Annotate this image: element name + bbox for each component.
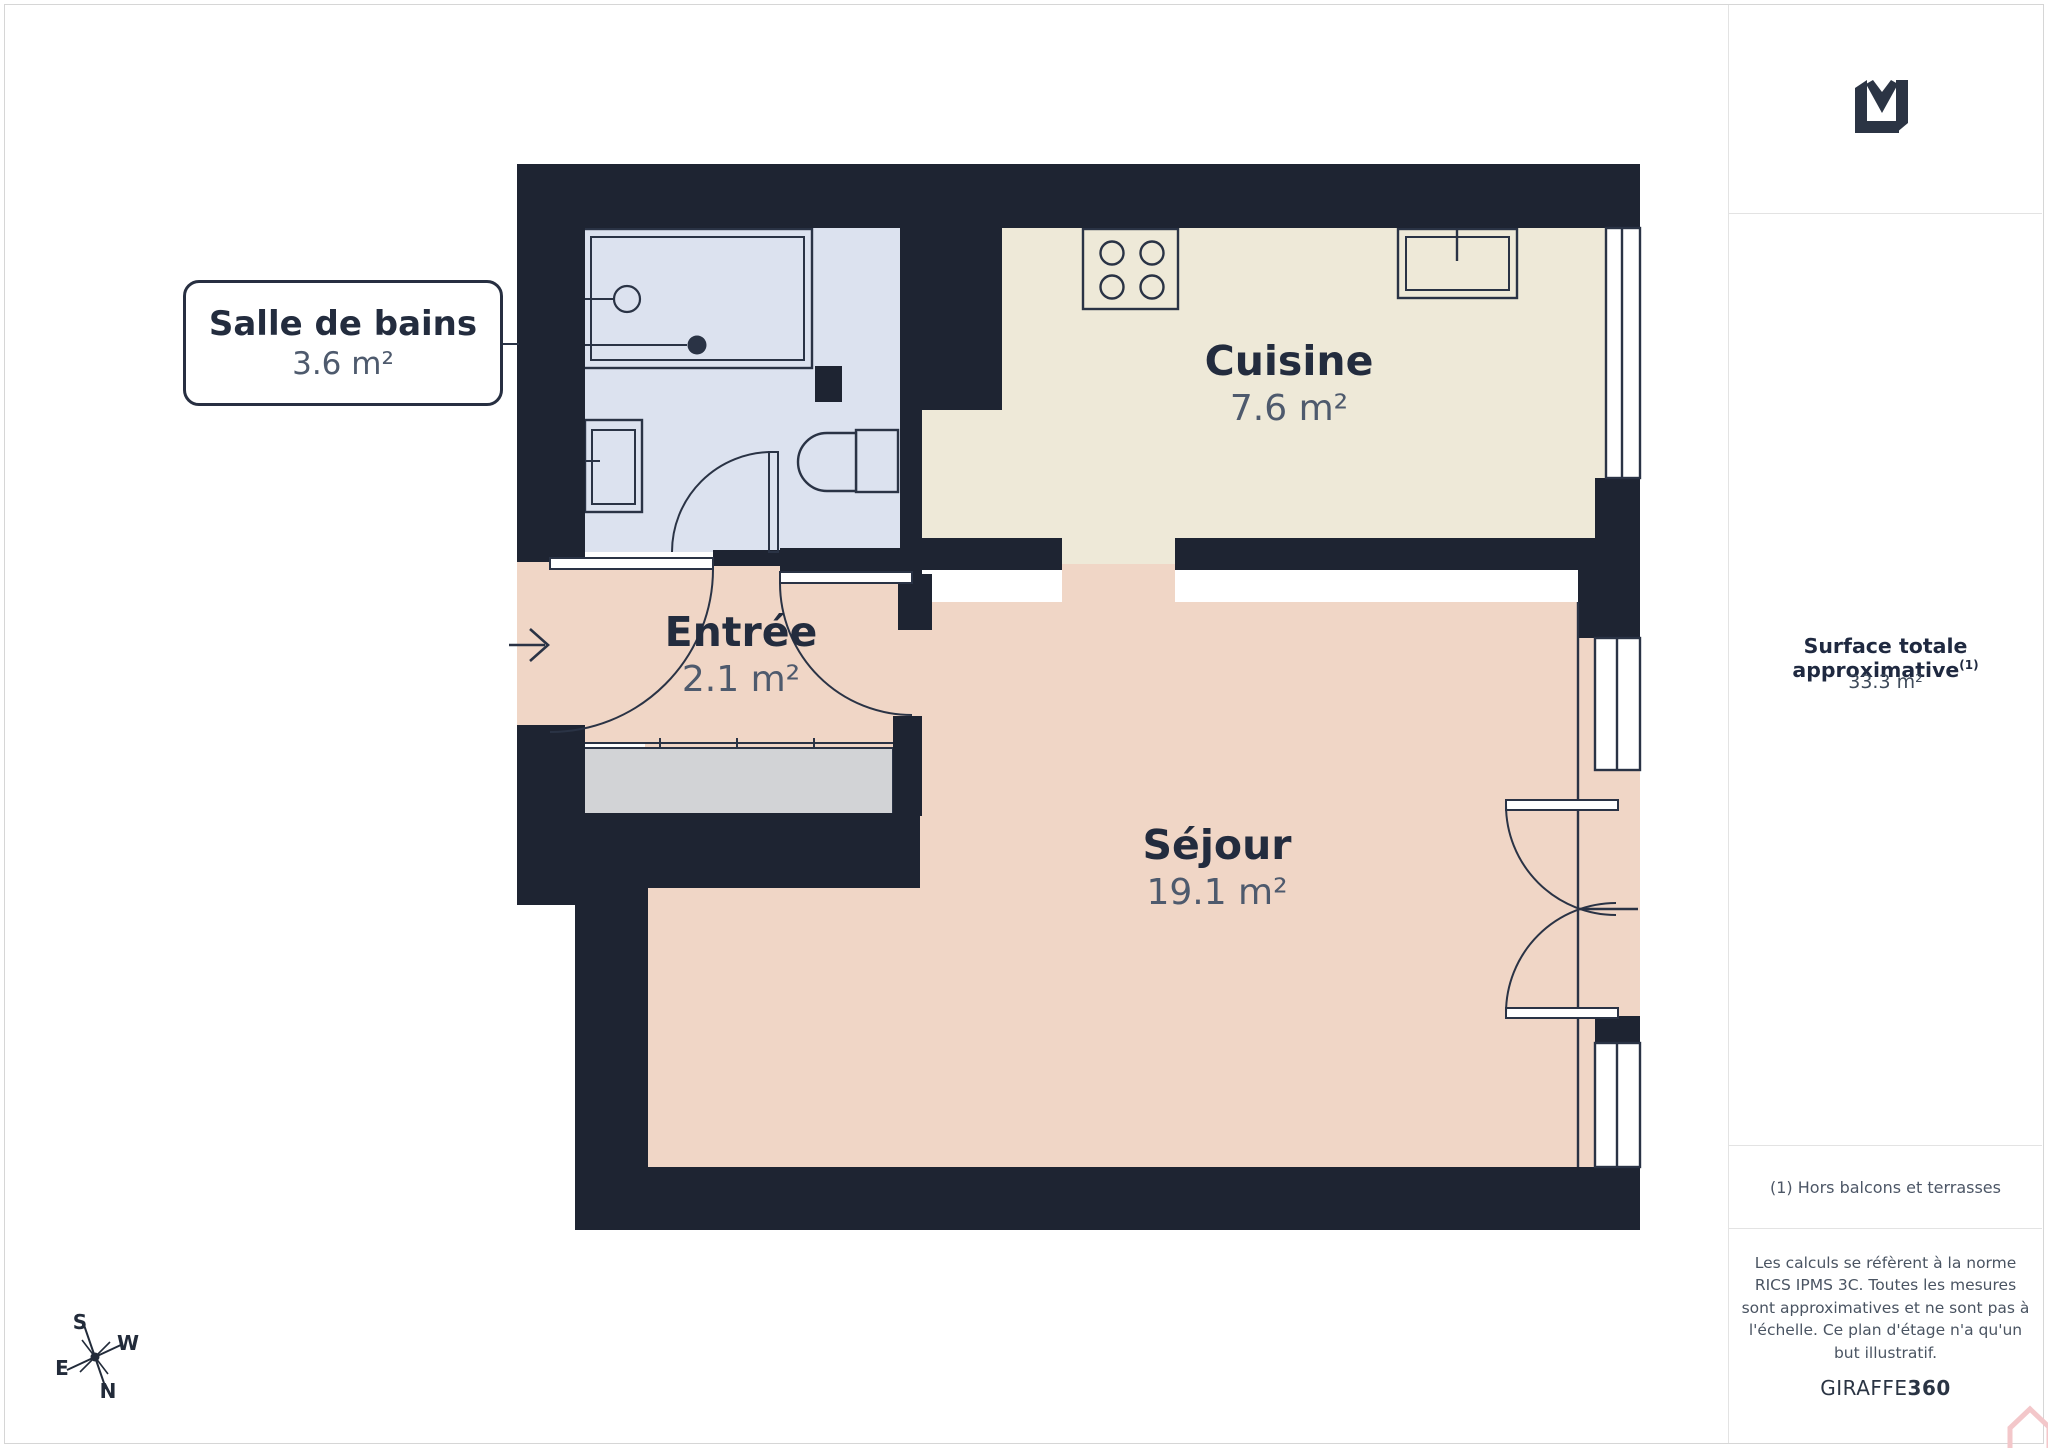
room-area: 7.6 m² (1205, 386, 1374, 432)
toilet (798, 430, 898, 492)
room-label-box-bathroom: Salle de bains 3.6 m² (183, 280, 503, 406)
giraffe360-brand: GIRAFFE360 (1729, 1376, 2042, 1400)
brand-name-regular: GIRAFFE (1820, 1376, 1907, 1400)
brand-name-bold: 360 (1908, 1376, 1951, 1400)
kitchen-window (1606, 228, 1640, 478)
kitchen-passage (1062, 538, 1175, 564)
sidebar-section-divider (1729, 213, 2042, 214)
compass-label-e: E (55, 1356, 69, 1380)
lm-logo-icon (1855, 80, 1911, 136)
room-label-entree: Entrée 2.1 m² (665, 607, 818, 703)
compass-label-s: S (73, 1310, 87, 1334)
footnote-text: (1) Hors balcons et terrasses (1729, 1178, 2042, 1197)
floorplan-canvas: S W E N (0, 0, 2048, 1448)
compass-label-n: N (100, 1379, 117, 1403)
room-area: 2.1 m² (665, 657, 818, 703)
room-label-sejour: Séjour 19.1 m² (1143, 820, 1292, 916)
room-label-cuisine: Cuisine 7.6 m² (1205, 336, 1374, 432)
passage-floor (1062, 564, 1175, 602)
sejour-window-bottom (1595, 1043, 1640, 1167)
room-area: 19.1 m² (1143, 870, 1292, 916)
sidebar-section-divider (1729, 1145, 2042, 1146)
house-watermark-icon (2010, 1409, 2048, 1448)
sidebar-section-divider (1729, 1228, 2042, 1229)
room-name: Salle de bains (209, 303, 477, 345)
disclaimer-text: Les calculs se réfèrent à la norme RICS … (1729, 1252, 2042, 1364)
room-name: Entrée (665, 607, 818, 657)
room-name: Cuisine (1205, 336, 1374, 386)
sejour-window-top (1595, 638, 1640, 770)
compass-label-w: W (117, 1331, 139, 1355)
wardrobe (583, 738, 893, 820)
tub-drain-icon (688, 336, 707, 355)
room-area: 3.6 m² (292, 345, 394, 383)
room-name: Séjour (1143, 820, 1292, 870)
surface-total-value: 33.3 m² (1729, 671, 2042, 693)
brand-logo (1855, 80, 1911, 136)
